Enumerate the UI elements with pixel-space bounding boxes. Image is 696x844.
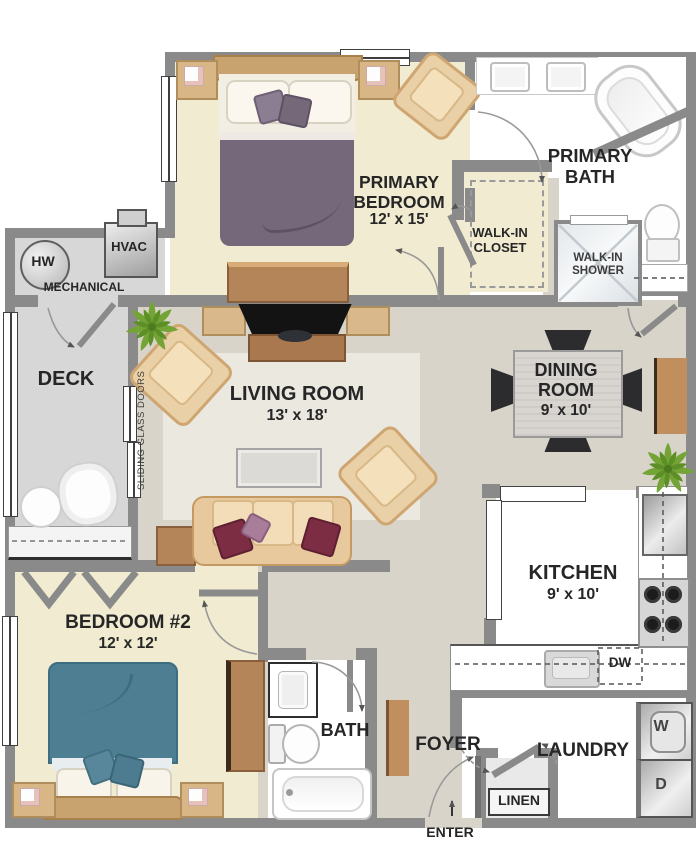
wall-mid-a3 [678, 295, 696, 307]
burner-icon [644, 616, 661, 633]
wall-bottom-right [482, 818, 696, 828]
wall-linen-left [476, 752, 486, 818]
tub-basin [282, 776, 364, 812]
lamp-icon [188, 788, 208, 806]
bedroom2-dims: 12' x 12' [48, 635, 208, 652]
dresser [226, 660, 265, 772]
sliding-door-panel-1 [123, 386, 137, 442]
sink-icon [490, 62, 530, 92]
bathtub-icon [272, 768, 372, 820]
deck-table [20, 486, 62, 528]
blanket-fold [70, 674, 133, 714]
window-bedroom2 [2, 616, 18, 746]
primary-bedroom-label: PRIMARY BEDROOM [344, 173, 454, 212]
hvac-label: HVAC [104, 240, 154, 255]
primary-bath-label: PRIMARY BATH [534, 146, 646, 187]
burner-icon [644, 586, 661, 603]
wall-mid-a1 [5, 295, 38, 307]
fridge-icon [642, 494, 688, 556]
tv-base [278, 330, 312, 342]
bar-counter-top [500, 486, 586, 502]
stove-icon [638, 578, 690, 648]
bed2-blanket [48, 662, 178, 764]
walk-in-closet-label: WALK-IN CLOSET [460, 226, 540, 255]
wall-bath-top-left [258, 648, 306, 660]
coffee-table [236, 448, 322, 488]
speaker-cabinet [202, 306, 246, 336]
dryer-label: D [636, 776, 686, 794]
accent-pillow [277, 93, 313, 129]
linen-label-box: LINEN [488, 788, 550, 816]
tub-faucet-icon [286, 789, 293, 796]
sofa-icon [192, 496, 348, 562]
walk-in-shower-label: WALK-IN SHOWER [562, 252, 634, 278]
kitchen-sink-icon [544, 650, 600, 688]
lamp-icon [366, 66, 386, 86]
dresser [227, 262, 349, 303]
living-room-label: LIVING ROOM [212, 383, 382, 405]
bath-vanity [268, 662, 318, 718]
lamp-icon [20, 788, 40, 806]
mechanical-label: MECHANICAL [8, 281, 160, 294]
living-room-dims: 13' x 18' [212, 407, 382, 425]
blanket-fold [262, 194, 342, 233]
dining-room-label: DINING ROOM [521, 360, 611, 400]
window-primary-bedroom [161, 76, 177, 182]
toilet-tank [646, 238, 680, 262]
tv-stand [248, 334, 346, 362]
primary-bed-blanket [220, 132, 354, 246]
shower-door [570, 215, 628, 225]
sink-basin [552, 657, 590, 679]
washer-label: W [636, 718, 686, 736]
window-deck-bottom [8, 526, 132, 560]
foyer-label: FOYER [406, 734, 490, 755]
kitchen-dims: 9' x 10' [508, 586, 638, 604]
sliding-glass-doors-label: SLIDING GLASS DOORS [137, 340, 152, 520]
sink-icon [278, 671, 308, 709]
bath-label: BATH [314, 720, 376, 740]
wall-bath-top-right [356, 648, 377, 660]
dishwasher-label: DW [599, 655, 641, 670]
bar-counter-side [486, 500, 502, 620]
console-table [654, 358, 687, 434]
wall-bar-corner [482, 484, 500, 498]
window-deck [3, 312, 18, 517]
bed2-headboard [44, 796, 182, 820]
hvac-vent-icon [117, 209, 147, 227]
burner-icon [665, 616, 682, 633]
laundry-label: LAUNDRY [516, 740, 650, 761]
lamp-icon [184, 66, 204, 86]
speaker-cabinet [346, 306, 390, 336]
primary-bedroom-dims: 12' x 15' [344, 211, 454, 228]
hw-label: HW [20, 254, 66, 270]
deck-label: DECK [12, 368, 120, 390]
floor-plan: PRIMARY BEDROOM 12' x 15' PRIMARY BATH W… [0, 0, 696, 844]
dining-room-dims: 9' x 10' [521, 402, 611, 419]
enter-label: ENTER [416, 825, 484, 841]
burner-icon [665, 586, 682, 603]
sink-icon [546, 62, 586, 92]
linen-label: LINEN [490, 793, 548, 809]
side-table [156, 526, 196, 566]
kitchen-label: KITCHEN [508, 562, 638, 584]
bedroom2-label: BEDROOM #2 [48, 612, 208, 633]
